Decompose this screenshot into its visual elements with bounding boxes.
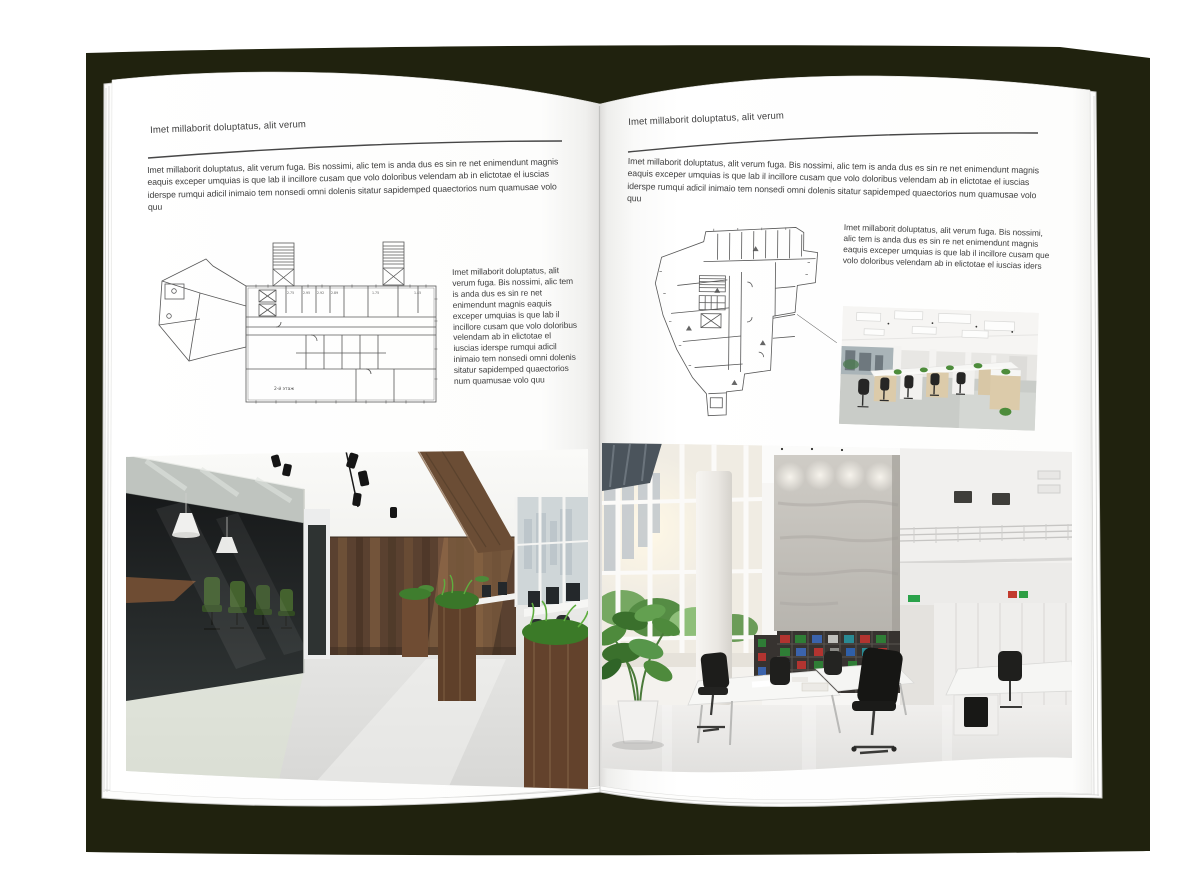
exit-sign	[908, 595, 920, 602]
plan-dim-label: 2.75	[287, 291, 294, 295]
photo-office-small	[839, 306, 1039, 431]
photo-office-loft	[126, 449, 588, 793]
plan-dim-label: 1.75	[372, 291, 379, 295]
plan-dim-label: 2.89	[331, 291, 338, 295]
right-page-intro: Imet millaborit doluptatus, alit verum f…	[627, 155, 1042, 214]
glass-door	[308, 525, 326, 655]
plan-floor-label: 2-й этаж	[274, 385, 294, 392]
photo-floor	[602, 705, 1074, 795]
glass-meeting-room	[126, 455, 306, 701]
right-floor-plan	[646, 221, 840, 423]
plan-dim-label: 1.45	[414, 291, 421, 295]
concrete-wall	[774, 455, 900, 631]
magazine-spread-mockup: Imet millaborit doluptatus, alit verum I…	[0, 0, 1200, 891]
left-page-intro: Imet millaborit doluptatus, alit verum f…	[147, 155, 568, 213]
hallway	[900, 605, 934, 705]
window-wall	[602, 443, 762, 705]
mezzanine	[900, 443, 1074, 605]
left-page-side-text: Imet millaborit doluptatus, alit verum f…	[452, 265, 578, 387]
plan-dim-label: 2.92	[317, 291, 324, 295]
left-floor-plan: 2.75 2.95 2.92 2.89 1.75 1.45 2-й этаж	[156, 229, 446, 419]
right-page-side-text: Imet millaborit doluptatus, alit verum f…	[843, 222, 1056, 272]
shredder-bin	[964, 697, 988, 727]
photo-office-hall	[602, 443, 1074, 795]
plan-dim-label: 2.95	[303, 291, 310, 295]
